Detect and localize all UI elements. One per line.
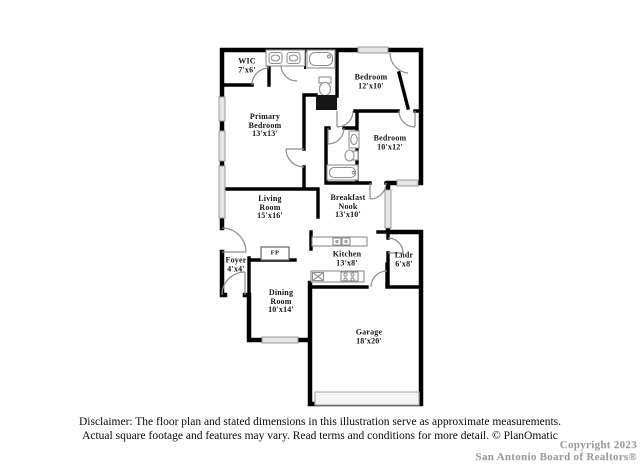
room-dims: 13'x8' — [333, 259, 362, 268]
bathtub-icon — [327, 165, 358, 180]
room-label-living-room: Living Room 15'x16' — [257, 195, 283, 221]
room-dims: 10'x12' — [374, 143, 407, 152]
toilet-icon — [319, 77, 331, 96]
garage-door — [315, 392, 419, 405]
hall-breakfast-door-arc — [370, 183, 386, 199]
room-label-fireplace: FP — [271, 249, 280, 258]
copyright-watermark: Copyright 2023 San Antonio Board of Real… — [476, 439, 637, 463]
shower-icon — [316, 95, 337, 110]
room-label-garage: Garage 18'x20' — [356, 328, 383, 345]
room-label-primary-bedroom: Primary Bedroom 13'x13' — [249, 113, 282, 139]
closet-door-arc — [390, 53, 408, 73]
double-vanity-sink-icon — [266, 50, 305, 66]
room-label-wic: WIC 7'x6' — [238, 57, 256, 74]
window — [397, 180, 418, 186]
window — [219, 131, 225, 161]
sink-icon — [349, 131, 359, 148]
window — [358, 47, 388, 53]
bathtub-icon — [307, 50, 335, 68]
window — [219, 166, 225, 218]
room-name: FP — [271, 249, 280, 258]
room-dims: 13'x10' — [331, 211, 366, 220]
kitchen-island — [312, 237, 367, 246]
room-dims: 18'x20' — [356, 337, 383, 346]
stove-icon — [341, 272, 358, 281]
bathroom-door-arc — [328, 128, 344, 144]
copyright-line-2: San Antonio Board of Realtors® — [476, 451, 637, 463]
room-dims: 10'x14' — [268, 306, 294, 315]
room-label-laundry: Lndr 6'x8' — [395, 251, 414, 268]
room-label-dining-room: Dining Room 10'x14' — [268, 289, 294, 315]
floor-plan-page: WIC 7'x6' Primary Bedroom 13'x13' Bedroo… — [0, 0, 640, 465]
room-dims: 12'x10' — [355, 82, 388, 91]
bedroom-12x10-door-arc — [337, 111, 353, 127]
entry-door-arc — [222, 228, 246, 252]
room-dims: 7'x6' — [238, 66, 256, 75]
room-dims: 15'x16' — [257, 212, 283, 221]
toilet-icon — [345, 150, 358, 161]
room-dims: 6'x8' — [395, 260, 414, 269]
foyer-dining-door-arc — [222, 272, 245, 295]
room-dims: 4'x4' — [226, 265, 247, 274]
room-dims: 13'x13' — [249, 130, 282, 139]
primary-bedroom-door-arc — [286, 149, 304, 167]
window — [262, 337, 298, 343]
bedroom-10x12-door-arc — [399, 111, 415, 127]
disclaimer-line-1: Disclaimer: The floor plan and stated di… — [0, 415, 640, 429]
primary-bath-door-arc — [281, 65, 297, 81]
room-label-breakfast-nook: Breakfast Nook 13'x10' — [331, 194, 366, 220]
window — [385, 190, 391, 228]
room-label-bedroom-10x12: Bedroom 10'x12' — [374, 134, 407, 151]
fixtures — [261, 50, 367, 282]
copyright-line-1: Copyright 2023 — [476, 439, 637, 451]
garage-entry-door-arc — [371, 271, 387, 287]
room-label-foyer: Foyer 4'x4' — [226, 256, 247, 273]
room-label-bedroom-12x10: Bedroom 12'x10' — [355, 73, 388, 90]
window — [219, 97, 225, 121]
room-label-kitchen: Kitchen 13'x8' — [333, 250, 362, 267]
floor-plan-drawing — [0, 0, 640, 465]
